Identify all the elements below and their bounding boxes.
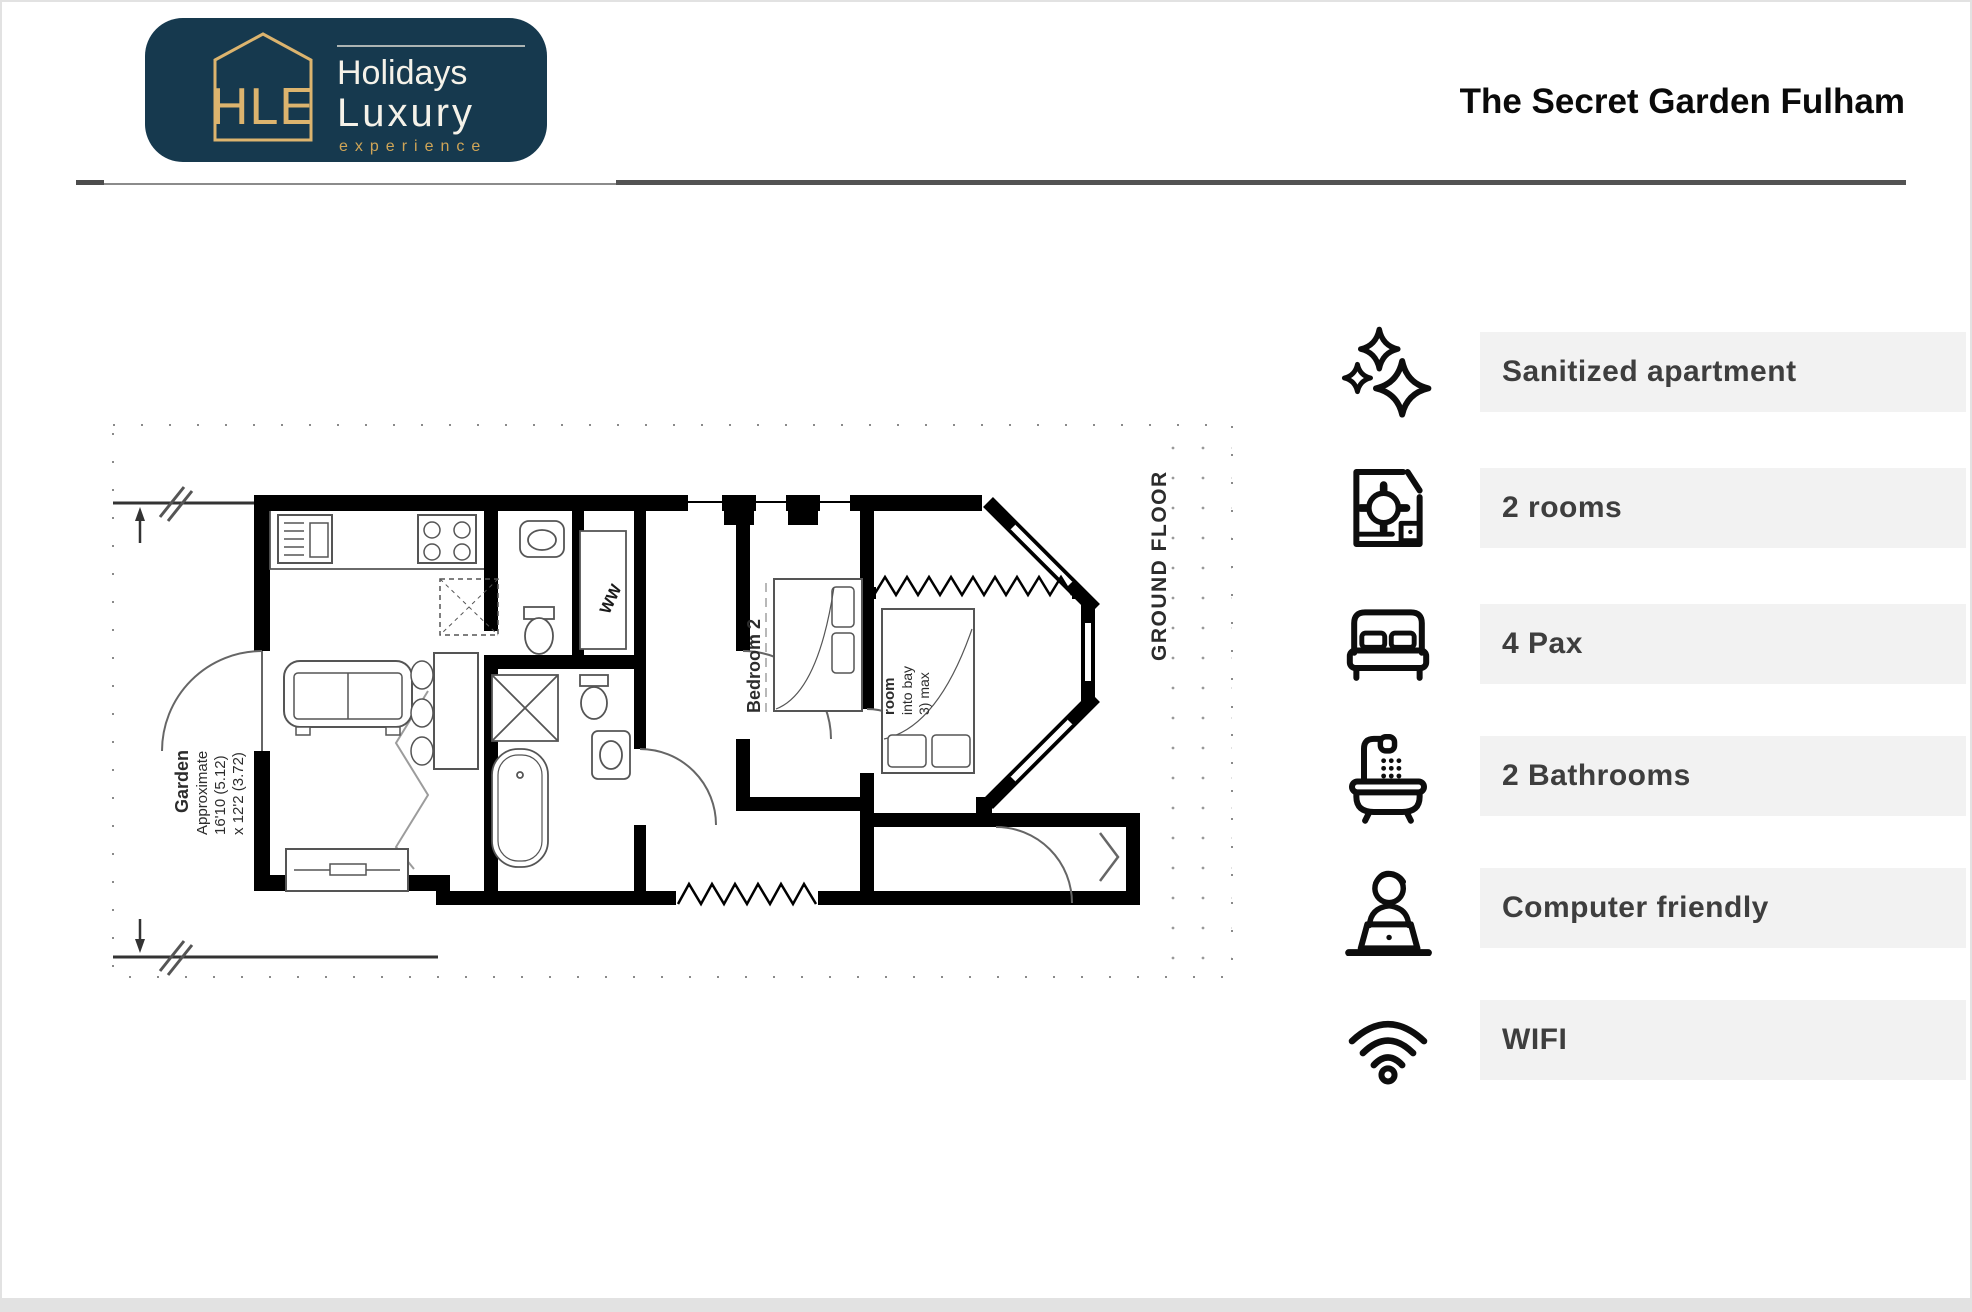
garden-label: Garden Approximate 16'10 (5.12) x 12'2 (… [172,750,247,835]
logo-monogram: HLE [211,78,315,136]
logo-brand-line2: Luxury [337,91,475,135]
floor-plan: WW Bedroom 2 [88,383,1244,1015]
bedroom2-label: Bedroom 2 [744,619,764,713]
amenity-label: 4 Pax [1502,627,1583,661]
amenity-row-bathrooms: 2 Bathrooms [1480,736,1966,816]
bathtub-icon [1340,728,1436,824]
amenity-row-wifi: WIFI [1480,1000,1966,1080]
amenity-label: Computer friendly [1502,891,1769,925]
living-furniture [284,653,478,891]
bedroom-2: Bedroom 2 [744,579,862,713]
person-laptop-icon [1340,860,1436,956]
page: HLE Holidays Luxury experience The Secre… [0,0,1972,1312]
window-end-left [866,587,876,599]
svg-text:room: room [881,678,898,716]
kitchen [270,511,498,635]
bedroom2-windows [688,495,850,525]
svg-text:Garden: Garden [172,750,192,813]
amenity-row-rooms: 2 rooms [1480,468,1966,548]
svg-text:Approximate: Approximate [194,751,211,835]
wifi-icon [1340,992,1436,1088]
bay-room: room into bay 3) max [881,609,974,773]
amenity-row-sanitized: Sanitized apartment [1480,332,1966,412]
logo-tagline: experience [339,138,487,155]
amenity-label: 2 rooms [1502,491,1622,525]
bay-room-window-zigzag [874,577,1072,595]
header-rule-thin [104,183,616,185]
corridor-window-zigzag [676,884,818,907]
amenity-row-pax: 4 Pax [1480,604,1966,684]
ww-closet: WW [580,531,626,649]
brand-logo-art: HLE Holidays Luxury experience [145,18,547,162]
page-bottom-strip [0,1298,1972,1312]
amenity-row-computer: Computer friendly [1480,868,1966,948]
header-rule-thick [616,180,1906,185]
fence-arrows [135,507,145,953]
bathroom-1 [520,521,564,654]
window-end-right [1072,587,1082,599]
header-rule-left-dash [76,180,104,185]
logo-brand-line1: Holidays [337,54,467,92]
svg-text:3) max: 3) max [916,672,932,715]
sparkles-icon [1340,324,1436,420]
bay-window [988,502,1095,804]
floorplan-icon [1340,460,1436,556]
bathroom-2 [492,675,630,867]
amenity-label: 2 Bathrooms [1502,759,1691,793]
ground-floor-label: GROUND FLOOR [1148,470,1171,661]
page-title: The Secret Garden Fulham [1460,82,1905,122]
bed-icon [1340,596,1436,692]
amenity-label: Sanitized apartment [1502,355,1797,389]
amenity-label: WIFI [1502,1023,1567,1057]
brand-logo: HLE Holidays Luxury experience [145,18,547,162]
svg-text:16'10 (5.12): 16'10 (5.12) [212,755,229,835]
svg-text:into bay: into bay [899,666,915,715]
svg-text:x 12'2 (3.72): x 12'2 (3.72) [230,752,247,835]
